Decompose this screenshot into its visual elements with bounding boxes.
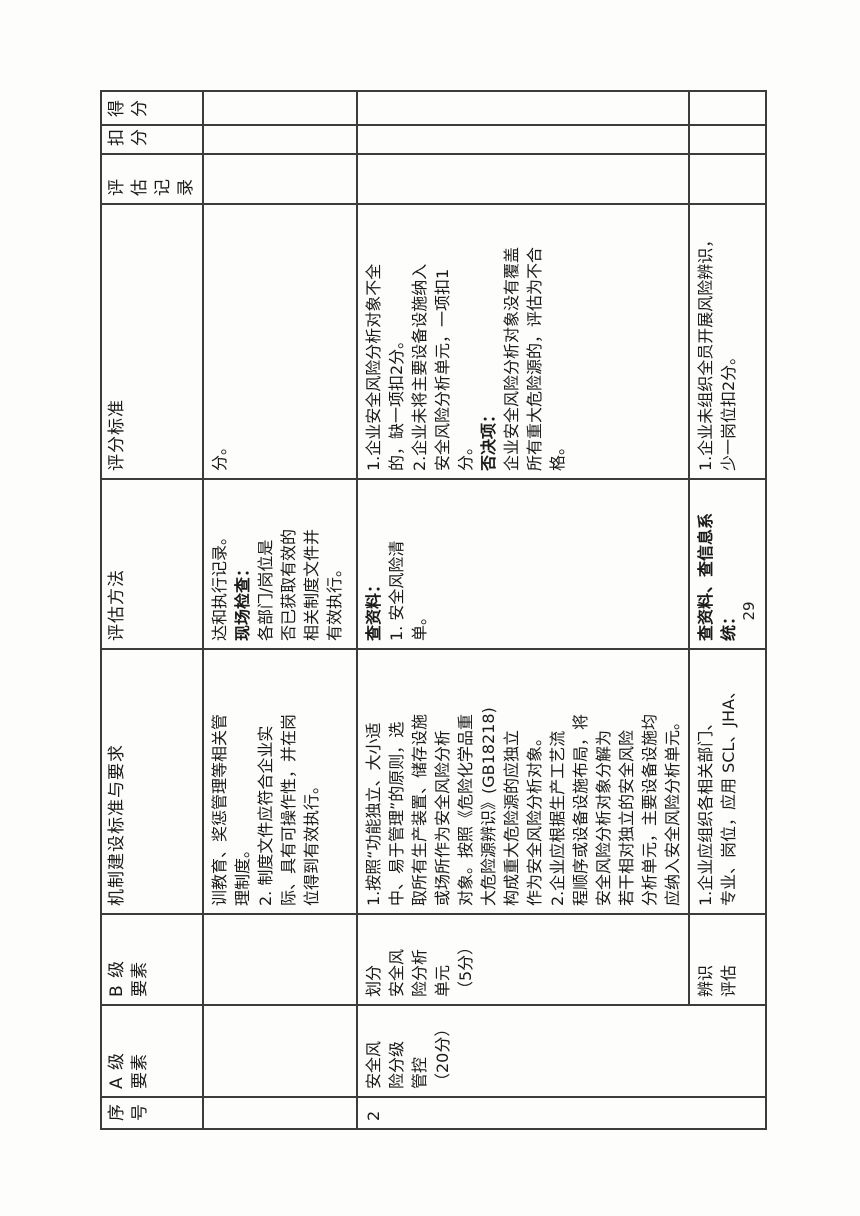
cell-r2-method: 查资料： 1. 安全风险清 单。 xyxy=(357,479,689,649)
header-level-a: A 级 要素 xyxy=(101,1005,203,1097)
r1-mechanism-text: 训教育、奖惩管理等相关管 理制度。 2. 制度文件应符合企业实 际、具有可操作性… xyxy=(208,657,323,906)
r2-scoring-part1: 1.企业安全风险分析对象不全 的，缺一项扣2分。 2.企业未将主要设备设施纳入 … xyxy=(362,212,477,471)
cell-r2-deduction xyxy=(357,125,689,154)
cell-r1-method: 达和执行记录。 现场检查： 各部门/岗位是 否已获取有效的 相关制度文件并 有效… xyxy=(203,479,357,649)
cell-r2-serial: 2 xyxy=(357,1097,766,1129)
cell-r1-serial xyxy=(203,1097,357,1129)
r1-scoring-text: 分。 xyxy=(208,212,231,471)
cell-r2-score xyxy=(357,91,689,125)
cell-r2-level-b: 划分 安全风 险分析 单元 （5分） xyxy=(357,914,689,1005)
header-serial: 序 号 xyxy=(101,1097,203,1129)
r2-serial-text: 2 xyxy=(362,1105,385,1121)
r2-scoring-veto-label: 否决项： xyxy=(477,212,500,471)
cell-r2-level-a: 安全风 险分级 管控 （20分） xyxy=(357,1005,766,1097)
header-method: 评估方法 xyxy=(101,479,203,649)
landscape-content: 序 号 A 级 要素 B 级 要素 机制建设标准与要求 评估方法 评分标准 评估… xyxy=(100,92,727,1130)
cell-r1-deduction xyxy=(203,125,357,154)
cell-r2-record xyxy=(357,154,689,204)
cell-r2-mechanism: 1.按照“功能独立、大小适 中、易于管理”的原则，选 取所有生产装置、储存设施 … xyxy=(357,649,689,914)
cell-r1-scoring: 分。 xyxy=(203,204,357,479)
cell-r1-level-b xyxy=(203,914,357,1005)
assessment-table: 序 号 A 级 要素 B 级 要素 机制建设标准与要求 评估方法 评分标准 评估… xyxy=(100,90,767,1130)
r3-level-b-text: 辨识 评估 xyxy=(694,922,740,997)
cell-r1-level-a xyxy=(203,1005,357,1097)
cell-r1-record xyxy=(203,154,357,204)
r2-level-a-text: 安全风 险分级 管控 （20分） xyxy=(362,1013,454,1089)
table-row-2: 2 安全风 险分级 管控 （20分） 划分 安全风 险分析 单元 （5分） 1.… xyxy=(357,91,689,1129)
header-score: 得 分 xyxy=(101,91,203,125)
r1-method-intro: 达和执行记录。 xyxy=(208,487,231,641)
header-record: 评估 记录 xyxy=(101,154,203,204)
cell-r1-score xyxy=(203,91,357,125)
rotated-table-area: 序 号 A 级 要素 B 级 要素 机制建设标准与要求 评估方法 评分标准 评估… xyxy=(100,92,727,1130)
r1-method-check-label: 现场检查： xyxy=(231,487,254,641)
r1-method-check-body: 各部门/岗位是 否已获取有效的 相关制度文件并 有效执行。 xyxy=(254,487,346,641)
cell-r2-scoring: 1.企业安全风险分析对象不全 的，缺一项扣2分。 2.企业未将主要设备设施纳入 … xyxy=(357,204,689,479)
r3-method-label: 查资料、查信息系 统： xyxy=(694,487,740,641)
header-level-b: B 级 要素 xyxy=(101,914,203,1005)
header-mechanism: 机制建设标准与要求 xyxy=(101,649,203,914)
r2-method-label: 查资料： xyxy=(362,487,385,641)
table-row-continuation: 训教育、奖惩管理等相关管 理制度。 2. 制度文件应符合企业实 际、具有可操作性… xyxy=(203,91,357,1129)
header-row: 序 号 A 级 要素 B 级 要素 机制建设标准与要求 评估方法 评分标准 评估… xyxy=(101,91,203,1129)
r2-mechanism-text: 1.按照“功能独立、大小适 中、易于管理”的原则，选 取所有生产装置、储存设施 … xyxy=(362,657,684,906)
page-number: 29 xyxy=(740,92,758,1130)
r3-scoring-text: 1.企业未组织全员开展风险辨识， 少一岗位扣2分。 xyxy=(694,212,740,471)
r3-mechanism-text: 1.企业应组织各相关部门、 专业、岗位，应用 SCL、JHA、 xyxy=(694,657,740,906)
cell-r1-mechanism: 训教育、奖惩管理等相关管 理制度。 2. 制度文件应符合企业实 际、具有可操作性… xyxy=(203,649,357,914)
r2-method-body: 1. 安全风险清 单。 xyxy=(385,487,431,641)
scanned-page: 序 号 A 级 要素 B 级 要素 机制建设标准与要求 评估方法 评分标准 评估… xyxy=(0,0,860,1216)
header-deduction: 扣 分 xyxy=(101,125,203,154)
r2-scoring-veto-body: 企业安全风险分析对象没有覆盖 所有重大危险源的，评估为不合 格。 xyxy=(500,212,569,471)
r2-level-b-text: 划分 安全风 险分析 单元 （5分） xyxy=(362,922,477,997)
header-scoring: 评分标准 xyxy=(101,204,203,479)
